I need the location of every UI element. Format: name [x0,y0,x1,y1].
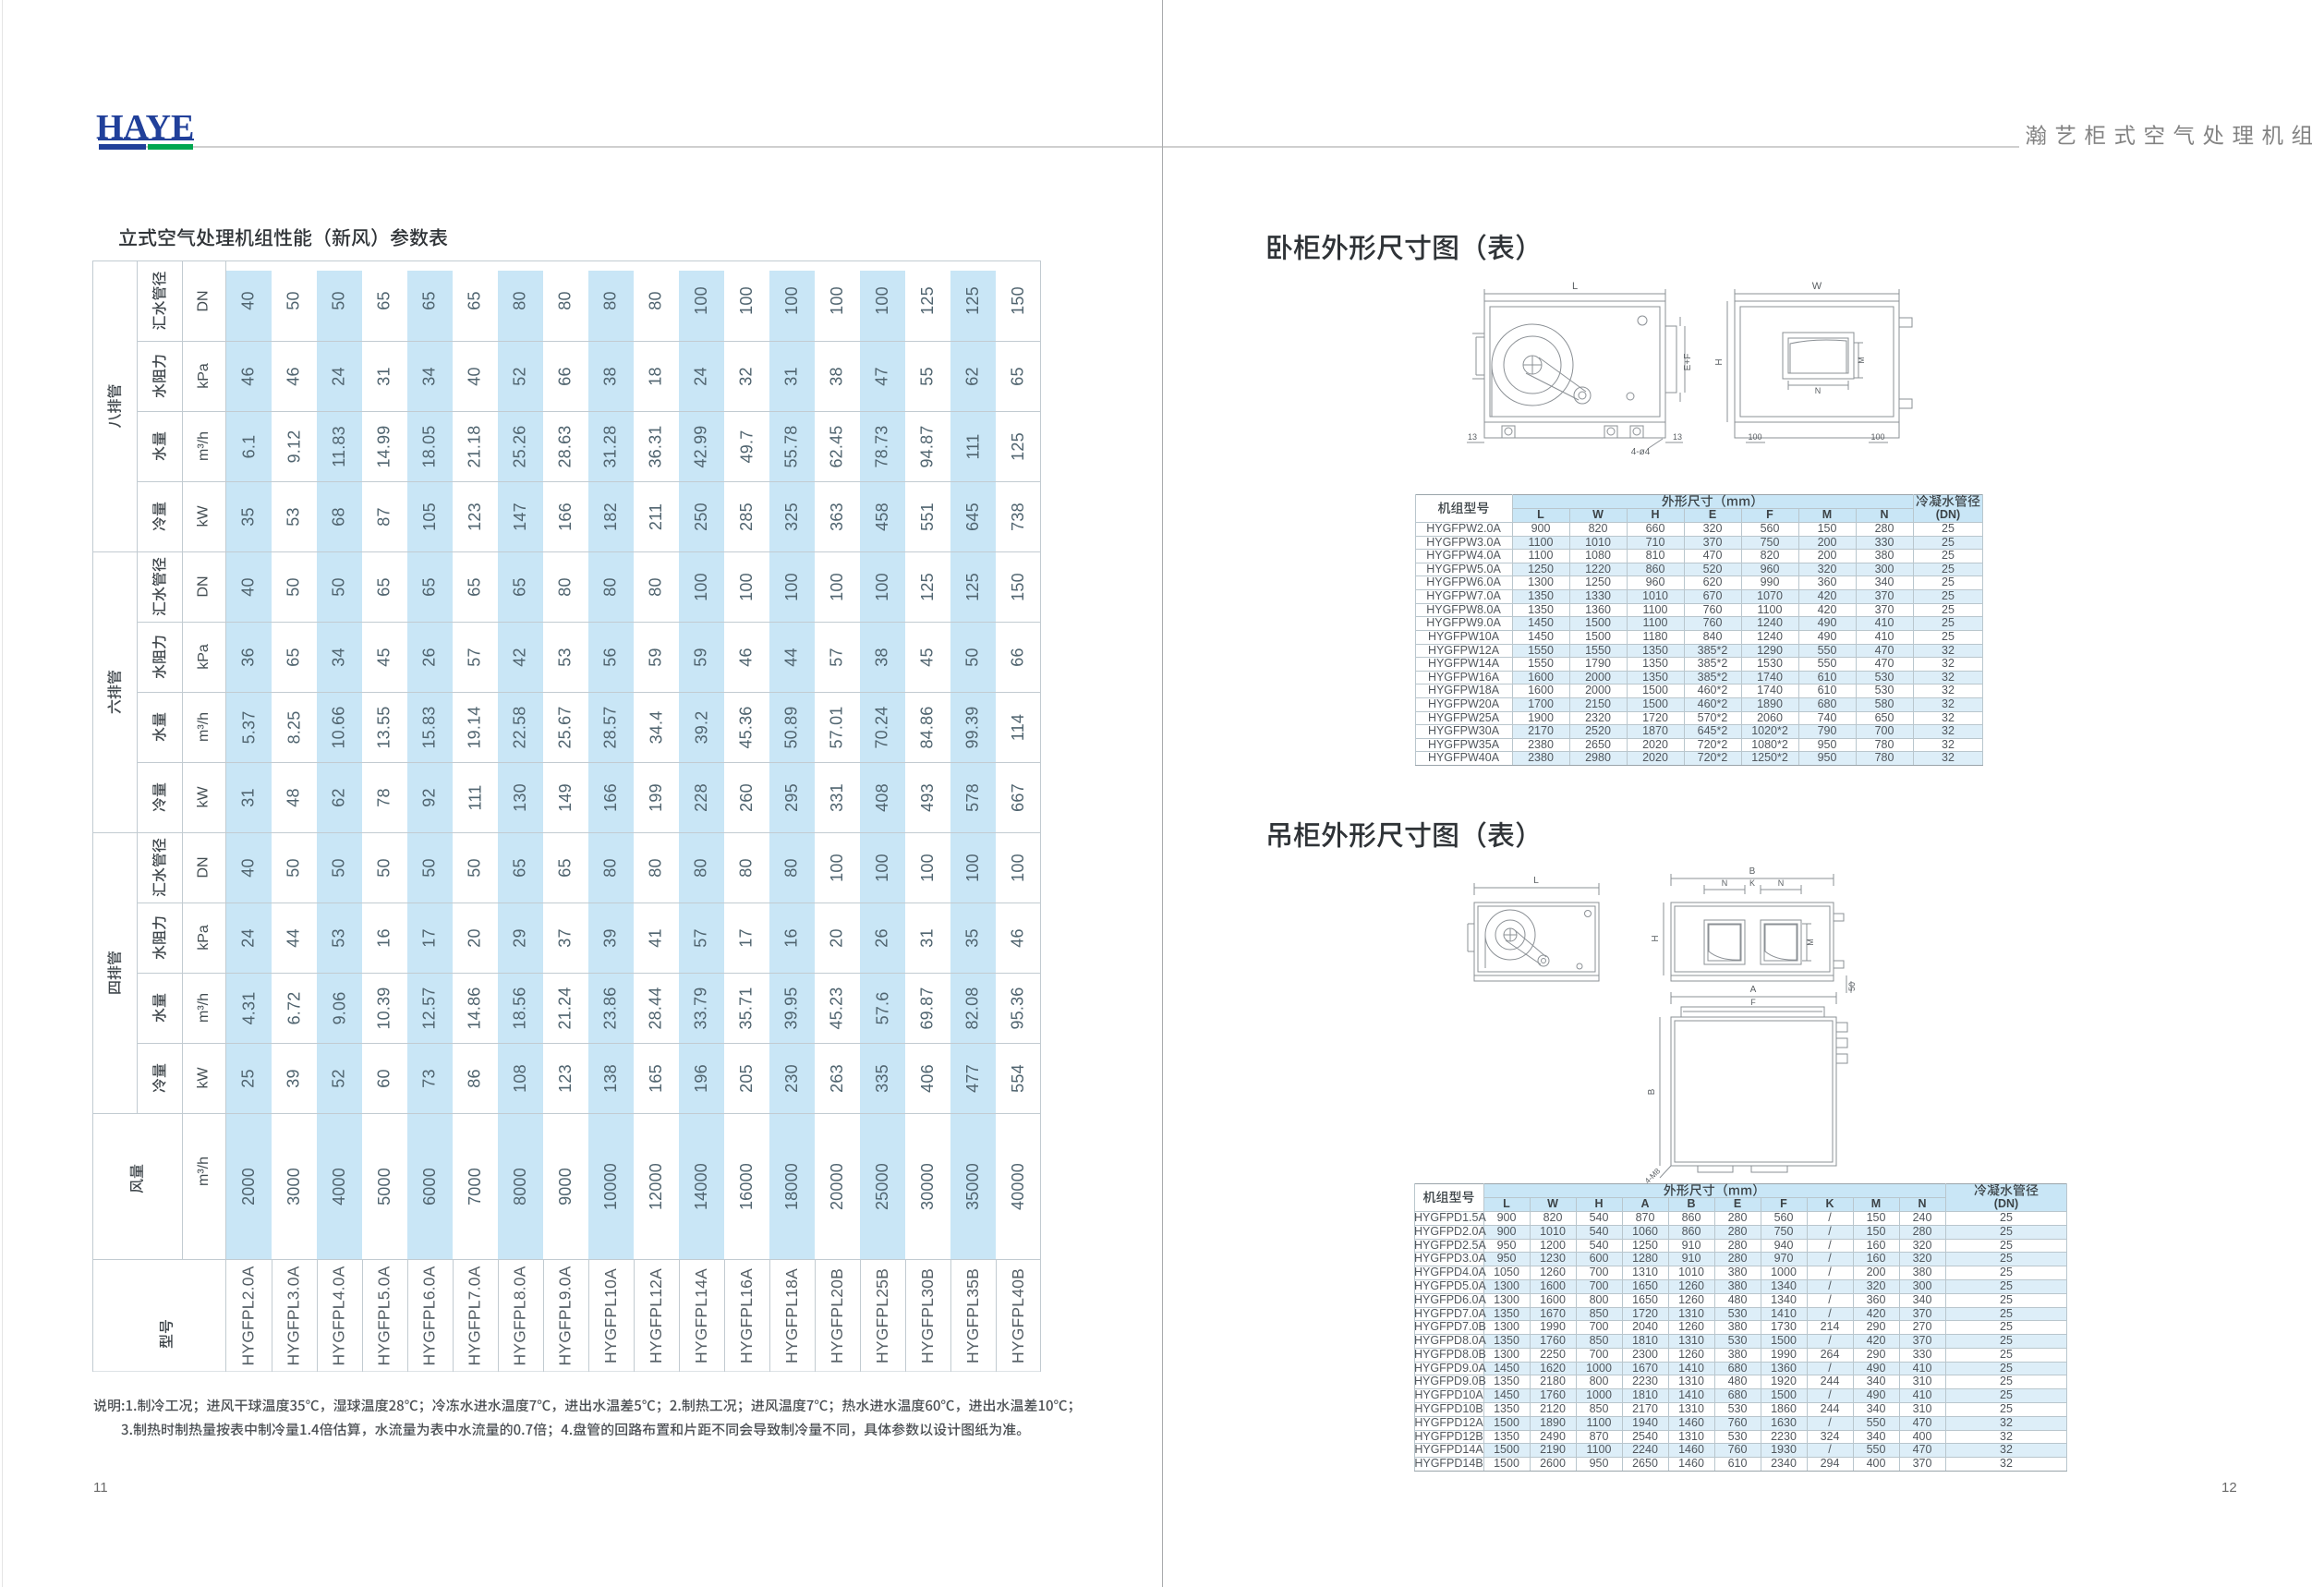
svg-text:M: M [1857,357,1866,364]
svg-text:W: W [1812,281,1822,292]
svg-text:A: A [1750,985,1757,995]
svg-text:B: B [1647,1088,1657,1095]
svg-text:50: 50 [1847,982,1857,991]
svg-text:H: H [1714,358,1725,365]
svg-text:M: M [1806,939,1815,946]
svg-text:13: 13 [1468,432,1477,442]
svg-text:L: L [1533,876,1539,886]
svg-text:N: N [1815,386,1822,395]
svg-text:100: 100 [1870,432,1884,442]
svg-text:4-ø4: 4-ø4 [1631,447,1651,457]
svg-text:B: B [1749,866,1756,877]
svg-text:H: H [1651,935,1661,941]
svg-text:E+F: E+F [1683,354,1693,371]
svg-text:100: 100 [1748,432,1761,442]
svg-text:13: 13 [1673,432,1682,442]
svg-text:N: N [1722,878,1728,888]
svg-text:F: F [1750,998,1756,1007]
svg-text:4-M8: 4-M8 [1642,1166,1662,1185]
svg-text:K: K [1749,878,1755,888]
svg-text:N: N [1778,878,1785,888]
svg-text:L: L [1572,281,1578,292]
